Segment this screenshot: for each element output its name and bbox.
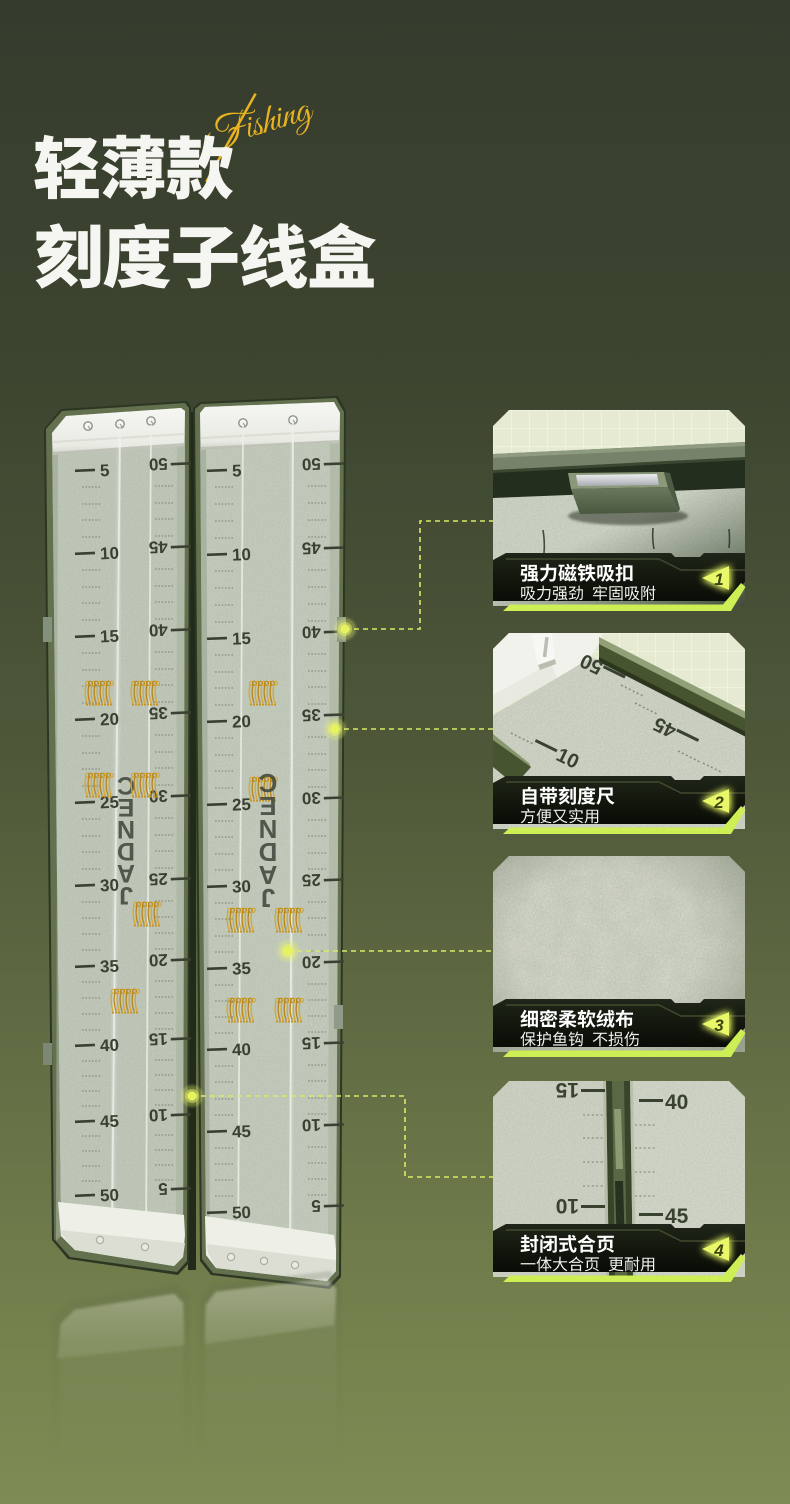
svg-text:50: 50 [148, 454, 168, 474]
svg-text:35: 35 [302, 705, 322, 725]
svg-text:15: 15 [100, 627, 120, 647]
svg-text:10: 10 [148, 1105, 168, 1125]
svg-text:5: 5 [311, 1196, 321, 1215]
svg-text:40: 40 [148, 620, 168, 640]
svg-text:30: 30 [302, 788, 322, 808]
svg-text:25: 25 [302, 870, 322, 890]
svg-text:4: 4 [713, 1241, 724, 1260]
svg-text:35: 35 [148, 703, 168, 723]
svg-text:15: 15 [555, 1078, 579, 1101]
svg-text:15: 15 [148, 1029, 168, 1049]
svg-text:45: 45 [100, 1112, 120, 1132]
svg-text:25: 25 [148, 869, 168, 889]
svg-text:20: 20 [302, 952, 322, 972]
svg-text:40: 40 [100, 1036, 120, 1056]
svg-text:40: 40 [232, 1040, 252, 1060]
svg-text:40: 40 [302, 622, 322, 642]
svg-text:30: 30 [232, 877, 252, 897]
svg-text:10: 10 [302, 1115, 322, 1135]
svg-text:30: 30 [100, 876, 120, 896]
svg-text:45: 45 [302, 538, 322, 558]
svg-text:35: 35 [100, 957, 120, 977]
svg-text:20: 20 [232, 712, 252, 732]
svg-text:3: 3 [714, 1016, 724, 1035]
svg-text:45: 45 [232, 1122, 252, 1142]
svg-text:50: 50 [302, 454, 322, 474]
svg-text:40: 40 [665, 1091, 688, 1114]
svg-text:1: 1 [714, 570, 723, 589]
svg-text:20: 20 [148, 950, 168, 970]
svg-text:25: 25 [232, 795, 252, 815]
svg-text:45: 45 [148, 537, 168, 557]
svg-text:35: 35 [232, 959, 252, 979]
svg-text:50: 50 [232, 1203, 252, 1223]
svg-text:5: 5 [100, 461, 110, 480]
svg-text:15: 15 [302, 1033, 322, 1053]
svg-text:J: J [119, 881, 133, 909]
svg-text:5: 5 [158, 1179, 168, 1198]
svg-text:10: 10 [556, 1194, 579, 1217]
svg-text:2: 2 [713, 793, 724, 812]
svg-text:15: 15 [232, 629, 252, 649]
svg-text:J: J [261, 883, 275, 913]
svg-text:10: 10 [232, 545, 252, 565]
svg-text:50: 50 [100, 1186, 120, 1206]
svg-text:20: 20 [100, 710, 120, 730]
svg-text:10: 10 [100, 544, 120, 564]
svg-text:5: 5 [232, 461, 242, 480]
